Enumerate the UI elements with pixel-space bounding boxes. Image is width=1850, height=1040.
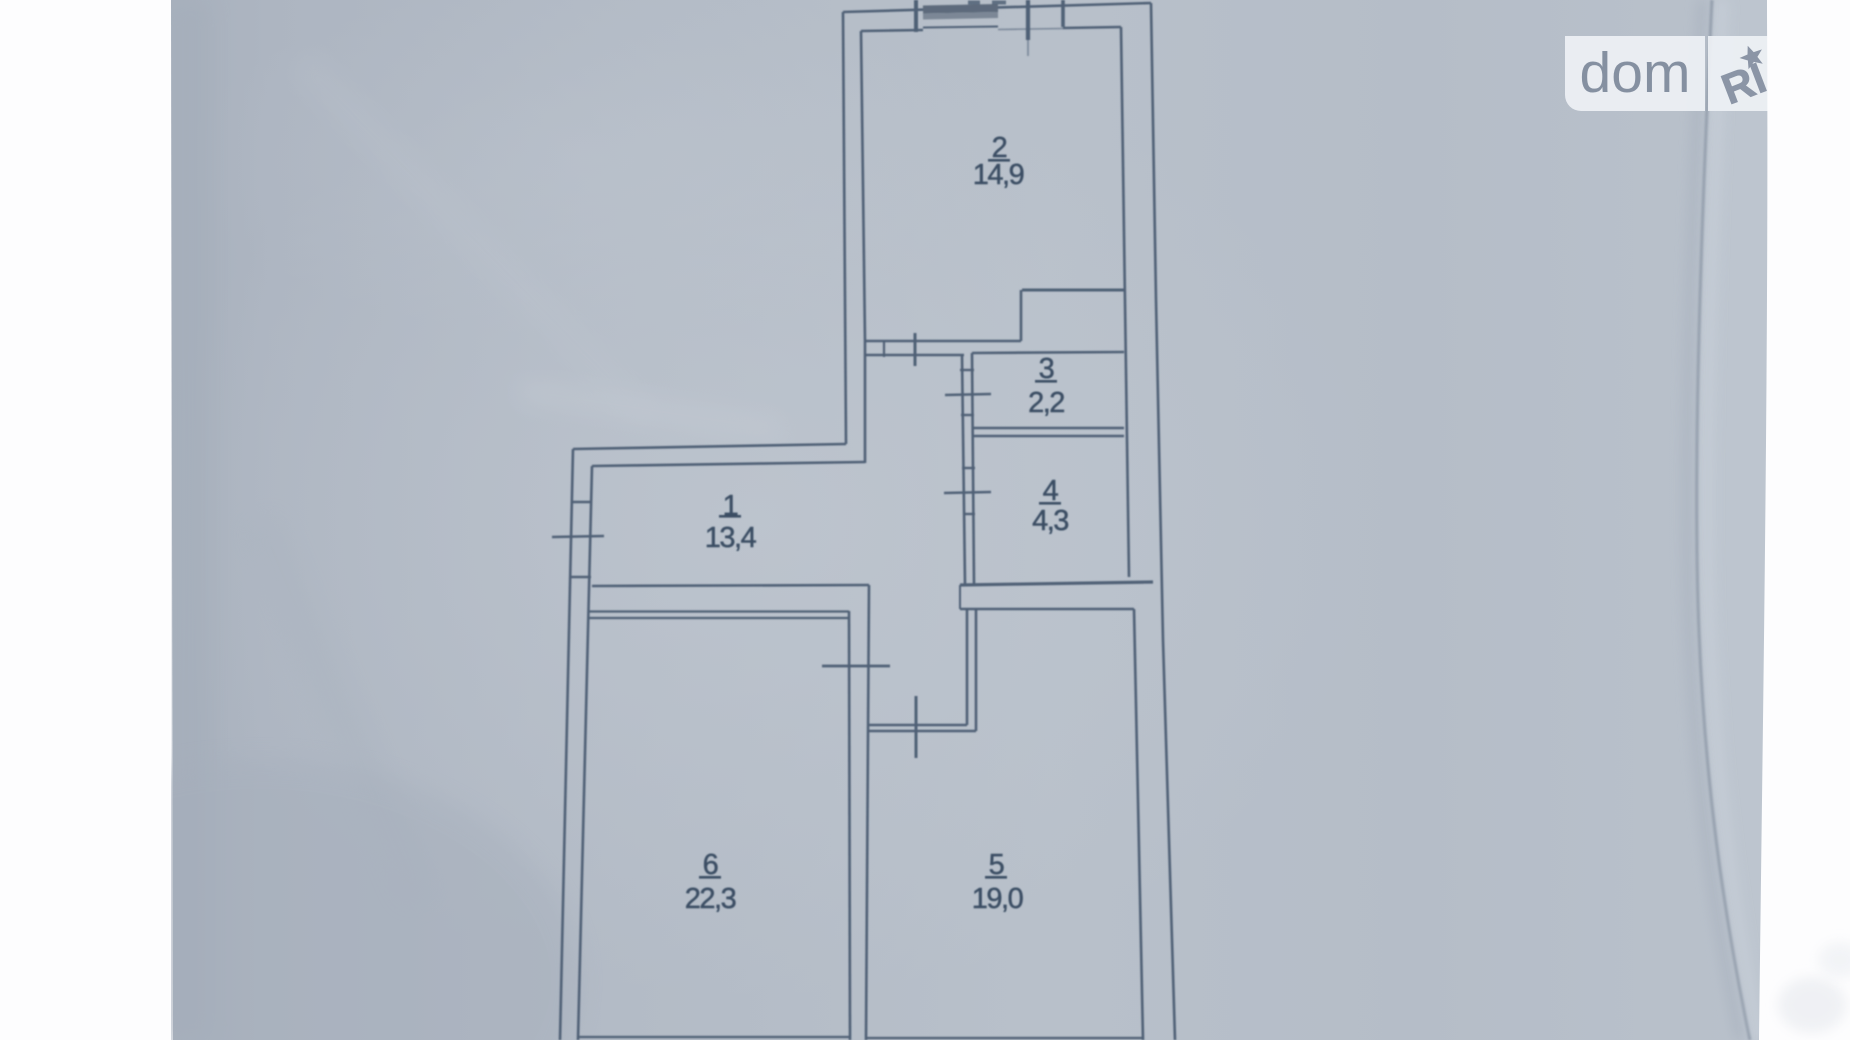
svg-text:dom: dom bbox=[1580, 41, 1691, 105]
svg-text:13,4: 13,4 bbox=[705, 522, 757, 554]
svg-text:19,0: 19,0 bbox=[972, 883, 1023, 915]
svg-text:4,3: 4,3 bbox=[1032, 505, 1068, 537]
svg-text:2,2: 2,2 bbox=[1028, 387, 1064, 419]
svg-text:14,9: 14,9 bbox=[973, 159, 1024, 191]
svg-text:22,3: 22,3 bbox=[685, 883, 736, 915]
